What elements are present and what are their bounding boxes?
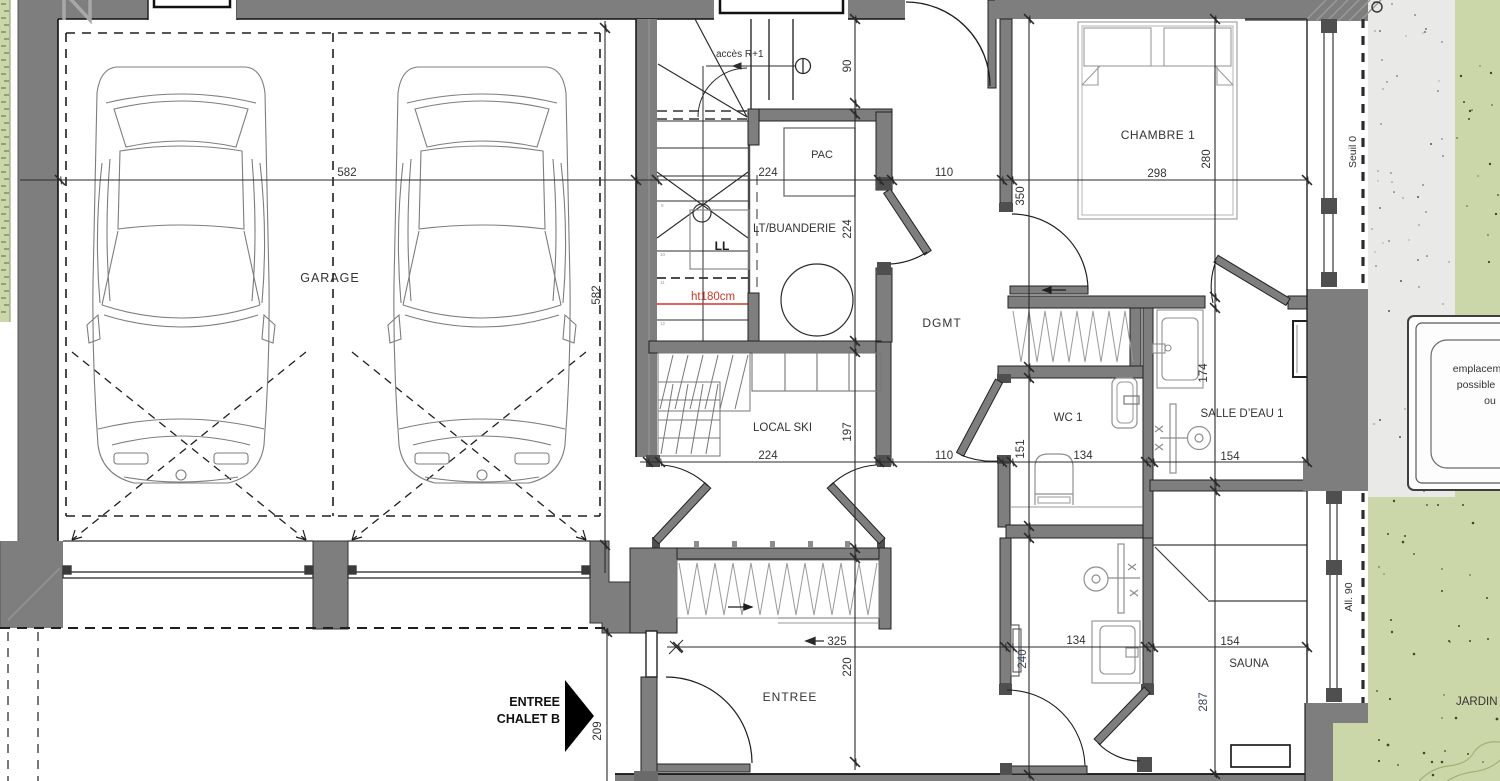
svg-text:110: 110 [935,450,953,462]
svg-text:SALLE D’EAU 1: SALLE D’EAU 1 [1200,408,1283,420]
svg-text:PAC: PAC [811,149,833,161]
svg-text:12: 12 [660,321,666,326]
svg-text:154: 154 [1220,636,1240,648]
svg-text:ENTREE: ENTREE [763,690,818,704]
svg-text:emplacem: emplacem [1453,363,1500,375]
svg-text:209: 209 [592,721,604,740]
svg-text:220: 220 [842,657,854,676]
svg-text:174: 174 [1198,363,1210,383]
svg-text:ENTREE: ENTREE [509,695,560,709]
svg-text:224: 224 [842,219,854,239]
svg-text:accès R+1: accès R+1 [716,49,764,60]
svg-text:350: 350 [1015,186,1027,205]
svg-text:DGMT: DGMT [922,316,961,330]
svg-text:LOCAL SKI: LOCAL SKI [753,422,812,434]
svg-text:224: 224 [758,450,778,462]
svg-text:WC 1: WC 1 [1054,412,1083,424]
svg-text:90: 90 [842,60,854,73]
svg-text:280: 280 [1201,149,1213,168]
svg-text:224: 224 [758,167,778,179]
svg-text:325: 325 [827,636,846,648]
svg-text:582: 582 [591,285,603,304]
svg-text:287: 287 [1198,692,1210,711]
svg-text:582: 582 [337,167,356,179]
svg-text:197: 197 [842,422,854,441]
svg-text:All. 90: All. 90 [1343,582,1355,611]
svg-text:ht180cm: ht180cm [691,291,735,303]
svg-text:CHAMBRE 1: CHAMBRE 1 [1121,128,1196,142]
svg-text:LT/BUANDERIE: LT/BUANDERIE [753,223,836,235]
svg-text:240: 240 [1017,649,1029,668]
svg-text:possible: possible [1457,379,1496,391]
svg-text:11: 11 [660,280,665,285]
svg-text:110: 110 [935,167,953,179]
svg-text:SAUNA: SAUNA [1229,658,1269,670]
svg-text:LL: LL [715,239,730,253]
svg-text:GARAGE: GARAGE [300,271,360,285]
svg-text:134: 134 [1066,635,1086,647]
svg-text:JARDIN: JARDIN [1456,696,1498,708]
svg-text:154: 154 [1220,451,1240,463]
svg-text:10: 10 [660,252,666,257]
svg-text:298: 298 [1147,168,1166,180]
svg-text:Seuil 0: Seuil 0 [1347,136,1359,168]
svg-text:134: 134 [1073,450,1093,462]
svg-text:151: 151 [1015,439,1027,458]
svg-text:ou: ou [1484,395,1496,407]
svg-text:CHALET B: CHALET B [497,712,560,726]
